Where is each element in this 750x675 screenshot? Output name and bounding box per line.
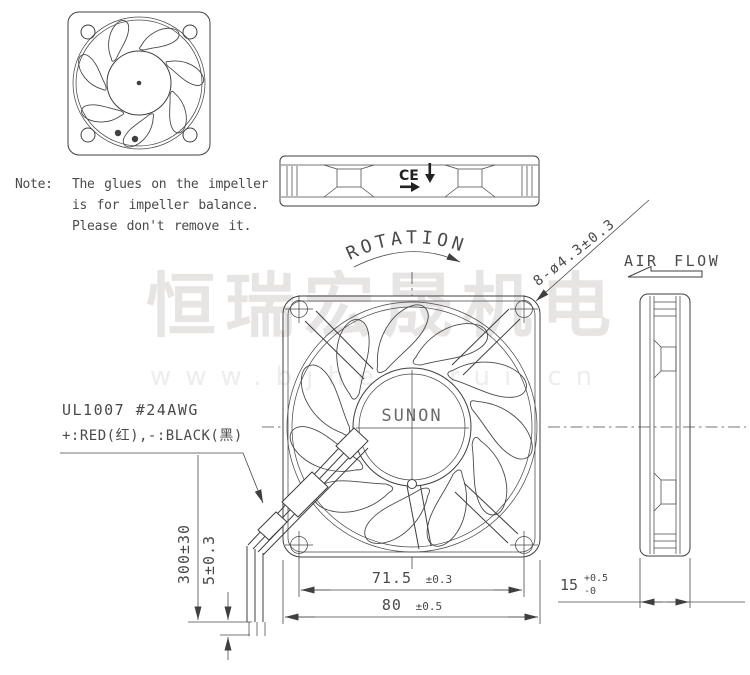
dim-frame-size-tol: ±0.5: [416, 600, 443, 613]
wire-strain-relief: [282, 472, 328, 517]
wire-spec-line-1: UL1007 #24AWG: [62, 401, 199, 419]
note-line-2: is for impeller balance.: [72, 198, 259, 213]
side-top-boss-left: [324, 165, 374, 197]
balance-glue-dot: [115, 130, 121, 136]
dimension-thickness: 15 +0.5 -0: [558, 558, 745, 608]
dim-lead-length-text: 300±30: [175, 524, 193, 584]
mounting-hole: [81, 128, 95, 142]
main-fan-hub: SUNON: [353, 368, 471, 489]
mounting-hole: [81, 25, 95, 39]
balance-glue-dot: [132, 136, 138, 142]
mounting-hole: [183, 25, 197, 39]
svg-text:ROTATION: ROTATION: [343, 227, 470, 264]
side-right-boss-top: [654, 340, 676, 378]
airflow-label: AIR FLOW: [624, 252, 720, 270]
note-label: Note:: [15, 177, 53, 192]
fan-front-view-small: [68, 12, 210, 155]
dim-strip-length-text: 5±0.3: [200, 535, 218, 585]
dim-thickness-value: 15: [560, 576, 578, 594]
wire-spec-line-2: +:RED(红),-:BLACK(黑): [62, 428, 243, 444]
wire-grommet: [408, 480, 417, 489]
wire-spec-block: UL1007 #24AWG +:RED(红),-:BLACK(黑): [60, 401, 263, 503]
ce-mark-text: CE: [399, 168, 419, 184]
side-right-boss-bottom: [654, 473, 676, 511]
note-line-1: The glues on the impeller: [72, 177, 269, 192]
airflow-callout: AIR FLOW: [624, 252, 720, 277]
fan-side-view-right: [640, 294, 690, 556]
side-top-boss-right: [445, 165, 495, 197]
dimension-hole-pitch: 71.5 ±0.3: [299, 558, 524, 597]
lead-wires: [247, 428, 368, 636]
ce-mark: CE: [399, 163, 435, 192]
fan-side-view-top: CE: [280, 156, 539, 206]
note-block: Note: The glues on the impeller is for i…: [15, 177, 269, 234]
dim-thickness-tol-plus: +0.5: [584, 573, 608, 584]
rotation-label: ROTATION: [343, 227, 470, 264]
dim-hole-pitch-tol: ±0.3: [426, 573, 453, 586]
note-line-3: Please don't remove it.: [72, 219, 251, 234]
hub-center-dot: [137, 81, 142, 86]
dimension-strip-length: 5±0.3: [200, 535, 250, 660]
dim-frame-size-text: 80 ±0.5: [382, 595, 442, 614]
dim-hole-pitch-text: 71.5 ±0.3: [372, 568, 452, 587]
wire-spec-leader: [60, 453, 263, 503]
watermark: 恒瑞宏晟机电 www.bjhengrui.cn: [146, 265, 620, 392]
dim-hole-pitch-value: 71.5: [372, 569, 412, 587]
rotation-callout: ROTATION: [343, 227, 470, 267]
rotation-direction-arrow-down: [425, 163, 435, 183]
dim-thickness-tol-minus: -0: [584, 586, 596, 597]
dim-frame-size-value: 80: [382, 596, 402, 614]
fan-technical-drawing: 恒瑞宏晟机电 www.bjhengrui.cn Note: The glues …: [0, 0, 750, 675]
mounting-hole: [183, 128, 197, 142]
